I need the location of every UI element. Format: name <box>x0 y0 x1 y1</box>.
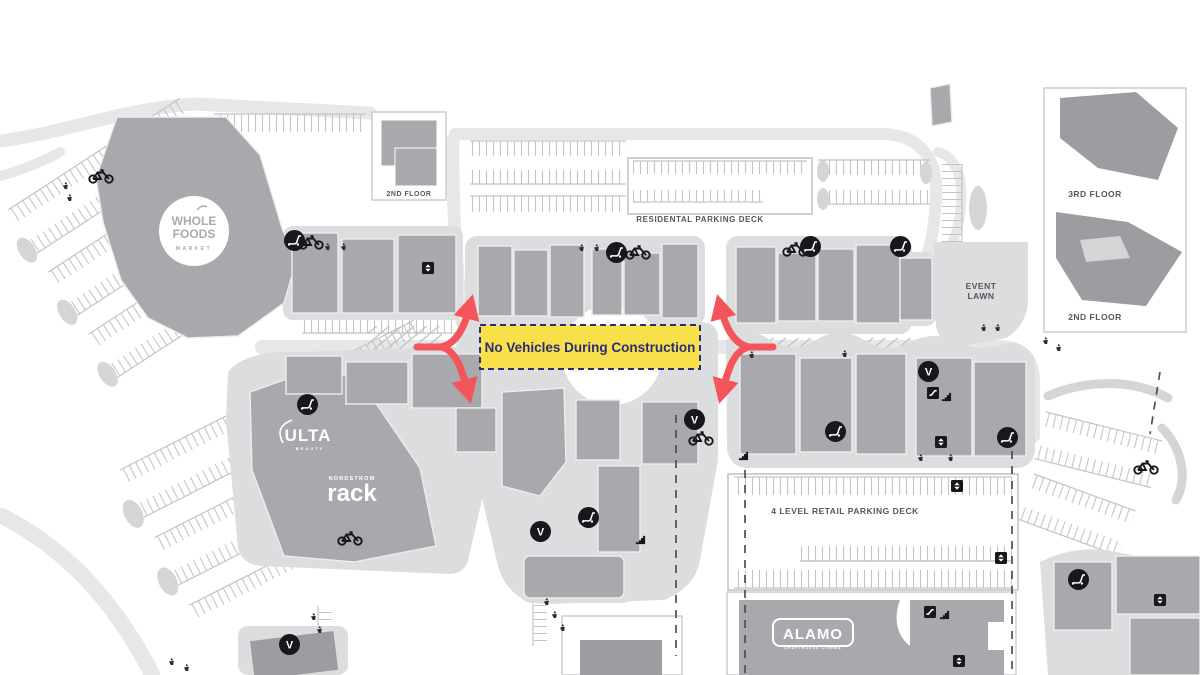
building[interactable] <box>800 358 852 452</box>
building[interactable] <box>286 356 342 394</box>
whole-foods-line3: MARKET <box>176 246 212 252</box>
scooter-icon <box>578 507 599 528</box>
building[interactable] <box>740 354 796 454</box>
third-floor-label: 3RD FLOOR <box>1068 189 1122 199</box>
inset-second-floor-top: 2ND FLOOR <box>372 112 446 200</box>
building[interactable] <box>524 556 624 598</box>
parking-field <box>1034 412 1162 488</box>
building[interactable] <box>346 362 408 404</box>
parking-island <box>817 188 829 210</box>
scooter-icon <box>284 230 305 251</box>
scooter-icon <box>297 394 318 415</box>
building[interactable] <box>1130 618 1200 675</box>
second-floor-top-label: 2ND FLOOR <box>387 191 432 198</box>
accessible-parking-icon <box>67 194 72 201</box>
building[interactable] <box>856 354 906 454</box>
building[interactable] <box>514 250 548 316</box>
residential-parking-deck <box>628 158 812 214</box>
inset-bottom-center <box>562 616 682 675</box>
road <box>2 516 152 674</box>
residential-parking-deck-label: RESIDENTAL PARKING DECK <box>636 215 764 224</box>
building[interactable] <box>856 245 900 323</box>
site-map-window: V <box>0 0 1200 675</box>
building[interactable] <box>662 244 698 318</box>
building[interactable] <box>580 640 662 675</box>
inset-upper-floors: 3RD FLOOR 2ND FLOOR <box>1044 88 1186 332</box>
building[interactable] <box>900 258 932 320</box>
valet-icon <box>279 634 300 655</box>
alamo-sub: DRAFTHOUSE CINEMA <box>784 646 841 650</box>
elevator-icon <box>995 552 1007 564</box>
parking-island <box>1162 428 1182 500</box>
ulta-name: ULTA <box>285 426 332 445</box>
retail-parking-deck: 4 LEVEL RETAIL PARKING DECK <box>728 474 1018 590</box>
scooter-icon <box>1068 569 1089 590</box>
parking-island <box>920 162 932 184</box>
parking-field <box>1018 474 1136 556</box>
building[interactable] <box>478 246 512 316</box>
valet-icon <box>918 361 939 382</box>
accessible-parking-icon <box>552 611 557 618</box>
nordstrom-rack-logo[interactable]: NORDSTROM rack <box>327 476 377 507</box>
accessible-parking-icon <box>169 658 174 665</box>
retail-parking-deck-label: 4 LEVEL RETAIL PARKING DECK <box>771 506 919 516</box>
building[interactable] <box>930 84 952 126</box>
whole-foods-line1: WHOLE <box>172 214 217 228</box>
building[interactable] <box>576 400 620 460</box>
rack-name: rack <box>327 480 377 507</box>
whole-foods-logo[interactable]: WHOLE FOODS MARKET <box>159 196 229 266</box>
second-floor-right-label: 2ND FLOOR <box>1068 312 1122 322</box>
elevator-icon <box>953 655 965 667</box>
building[interactable] <box>598 466 640 552</box>
valet-icon <box>684 409 705 430</box>
event-lawn-label-line1: EVENT <box>966 281 997 291</box>
building[interactable] <box>342 239 394 313</box>
accessible-parking-icon <box>184 664 189 671</box>
building[interactable] <box>818 249 854 321</box>
elevator-icon <box>935 436 947 448</box>
scooter-icon <box>997 427 1018 448</box>
building[interactable] <box>624 253 660 315</box>
whole-foods-line2: FOODS <box>173 227 216 241</box>
accessible-parking-icon <box>311 613 316 620</box>
valet-icon <box>530 521 551 542</box>
parking-island <box>969 186 987 230</box>
elevator-icon <box>422 262 434 274</box>
accessible-parking-icon <box>1043 337 1048 344</box>
parking-row <box>470 141 626 212</box>
parking-island <box>817 160 829 182</box>
parking-row <box>817 160 932 210</box>
escalator-icon <box>927 387 939 399</box>
ulta-sub: BEAUTY <box>296 446 324 451</box>
elevator-icon <box>951 480 963 492</box>
inset-alamo <box>727 592 1016 675</box>
building[interactable] <box>395 148 437 186</box>
scooter-icon <box>606 242 627 263</box>
event-lawn-label-line2: LAWN <box>967 291 994 301</box>
building[interactable] <box>778 253 816 321</box>
map-canvas: V <box>0 0 1200 675</box>
building[interactable] <box>550 245 584 317</box>
building[interactable] <box>736 247 776 323</box>
elevator-icon <box>1154 594 1166 606</box>
accessible-parking-icon <box>1056 344 1061 351</box>
building[interactable] <box>412 354 482 408</box>
alamo-name: ALAMO <box>783 626 843 643</box>
road <box>0 152 60 176</box>
scooter-icon <box>890 236 911 257</box>
construction-notice: No Vehicles During Construction <box>480 325 700 369</box>
construction-notice-text: No Vehicles During Construction <box>485 340 696 355</box>
scooter-icon <box>825 421 846 442</box>
building[interactable] <box>456 408 496 452</box>
scooter-icon <box>800 236 821 257</box>
escalator-icon <box>924 606 936 618</box>
parking-island <box>1048 383 1168 398</box>
